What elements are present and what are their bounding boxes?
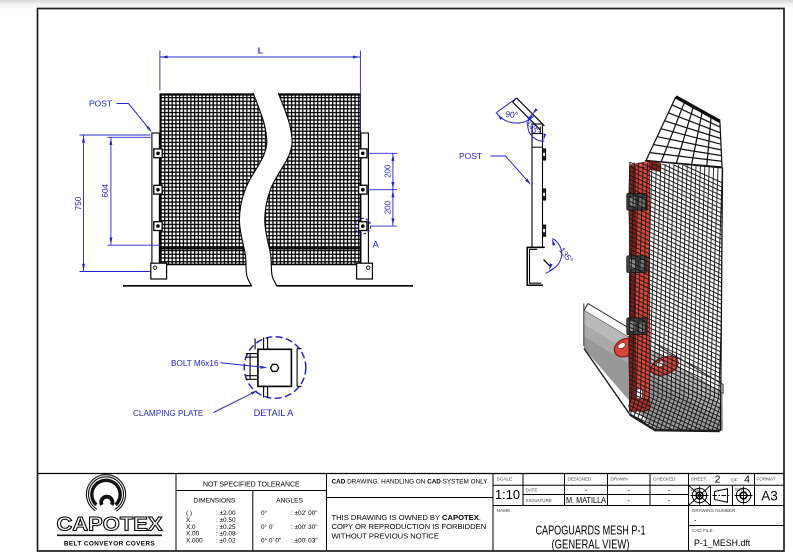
- svg-text:NOT SPECIFIED TOLERANCE: NOT SPECIFIED TOLERANCE: [203, 481, 300, 488]
- svg-text:: ±00' 30": : ±00' 30": [291, 524, 318, 531]
- svg-text:DRAWN: DRAWN: [611, 477, 628, 482]
- svg-text:CLAMPING PLATE: CLAMPING PLATE: [133, 409, 204, 418]
- svg-text:-: -: [628, 488, 631, 495]
- svg-text:FORMAT: FORMAT: [757, 477, 776, 482]
- svg-text:CAD FILE: CAD FILE: [692, 528, 713, 533]
- svg-text:0°: 0°: [261, 509, 268, 517]
- svg-text:THIS DRAWING IS OWNED BY CAPOT: THIS DRAWING IS OWNED BY CAPOTEX.: [332, 513, 481, 522]
- svg-text:200: 200: [383, 200, 392, 214]
- svg-text:: ±0.02: : ±0.02: [216, 538, 236, 545]
- svg-text:P-1_MESH.dft: P-1_MESH.dft: [694, 538, 751, 548]
- svg-text:0° 0' 0": 0° 0' 0": [261, 537, 281, 545]
- svg-text:SHEET: SHEET: [691, 477, 707, 482]
- svg-text:: ±00' 03": : ±00' 03": [291, 538, 318, 545]
- svg-text:(GENERAL VIEW): (GENERAL VIEW): [552, 538, 630, 552]
- svg-text:-: -: [585, 488, 588, 495]
- svg-text:604: 604: [101, 184, 110, 198]
- svg-text:SIGNATURE: SIGNATURE: [526, 498, 552, 503]
- svg-text:POST: POST: [89, 99, 112, 109]
- svg-text:1:10: 1:10: [495, 487, 520, 502]
- svg-text:DRAWING NUMBER: DRAWING NUMBER: [692, 508, 736, 513]
- svg-text:-: -: [628, 498, 631, 505]
- svg-text:M. MATILLA: M. MATILLA: [566, 496, 607, 505]
- svg-text:DATE: DATE: [526, 488, 538, 493]
- svg-text:-: -: [668, 498, 671, 505]
- svg-text:OF: OF: [731, 478, 738, 484]
- svg-text:ANGLES: ANGLES: [276, 498, 303, 505]
- svg-text:CAPOGUARDS MESH P-1: CAPOGUARDS MESH P-1: [536, 524, 646, 538]
- svg-text:BELT CONVEYOR COVERS: BELT CONVEYOR COVERS: [64, 540, 156, 547]
- svg-text:L: L: [258, 46, 263, 56]
- svg-text:: ±02' 00": : ±02' 00": [291, 510, 318, 517]
- svg-text:POST: POST: [459, 151, 482, 161]
- svg-text:CAPOTEX: CAPOTEX: [57, 514, 163, 536]
- svg-text:SCALE: SCALE: [497, 477, 513, 483]
- svg-text:-: -: [694, 518, 697, 525]
- svg-text:NAME: NAME: [497, 508, 511, 514]
- svg-text:WITHOUT PREVIOUS NOTICE: WITHOUT PREVIOUS NOTICE: [332, 531, 439, 540]
- svg-text:-: -: [668, 488, 671, 495]
- svg-text:COPY OR REPRODUCTION IS FORBID: COPY OR REPRODUCTION IS FORBIDDEN: [332, 522, 487, 531]
- svg-text:A: A: [373, 240, 380, 251]
- svg-text:DIMENSIONS: DIMENSIONS: [194, 498, 236, 505]
- svg-text:A3: A3: [761, 489, 778, 504]
- svg-text:CHECKED: CHECKED: [653, 477, 676, 482]
- svg-text:DETAIL A: DETAIL A: [254, 408, 295, 418]
- svg-text:750: 750: [74, 196, 83, 210]
- svg-text:X.000: X.000: [186, 538, 203, 545]
- svg-text:2: 2: [715, 474, 721, 486]
- svg-text:200: 200: [383, 164, 392, 178]
- svg-text:0° 0': 0° 0': [261, 523, 274, 531]
- svg-text:CAD DRAWING. HANDLING ON CAD S: CAD DRAWING. HANDLING ON CAD SYSTEM ONLY: [332, 479, 488, 486]
- svg-text:4: 4: [744, 474, 750, 486]
- svg-text:DESIGNED: DESIGNED: [568, 477, 593, 482]
- svg-text:90°: 90°: [505, 109, 519, 120]
- svg-text:BOLT M6x16: BOLT M6x16: [171, 359, 219, 368]
